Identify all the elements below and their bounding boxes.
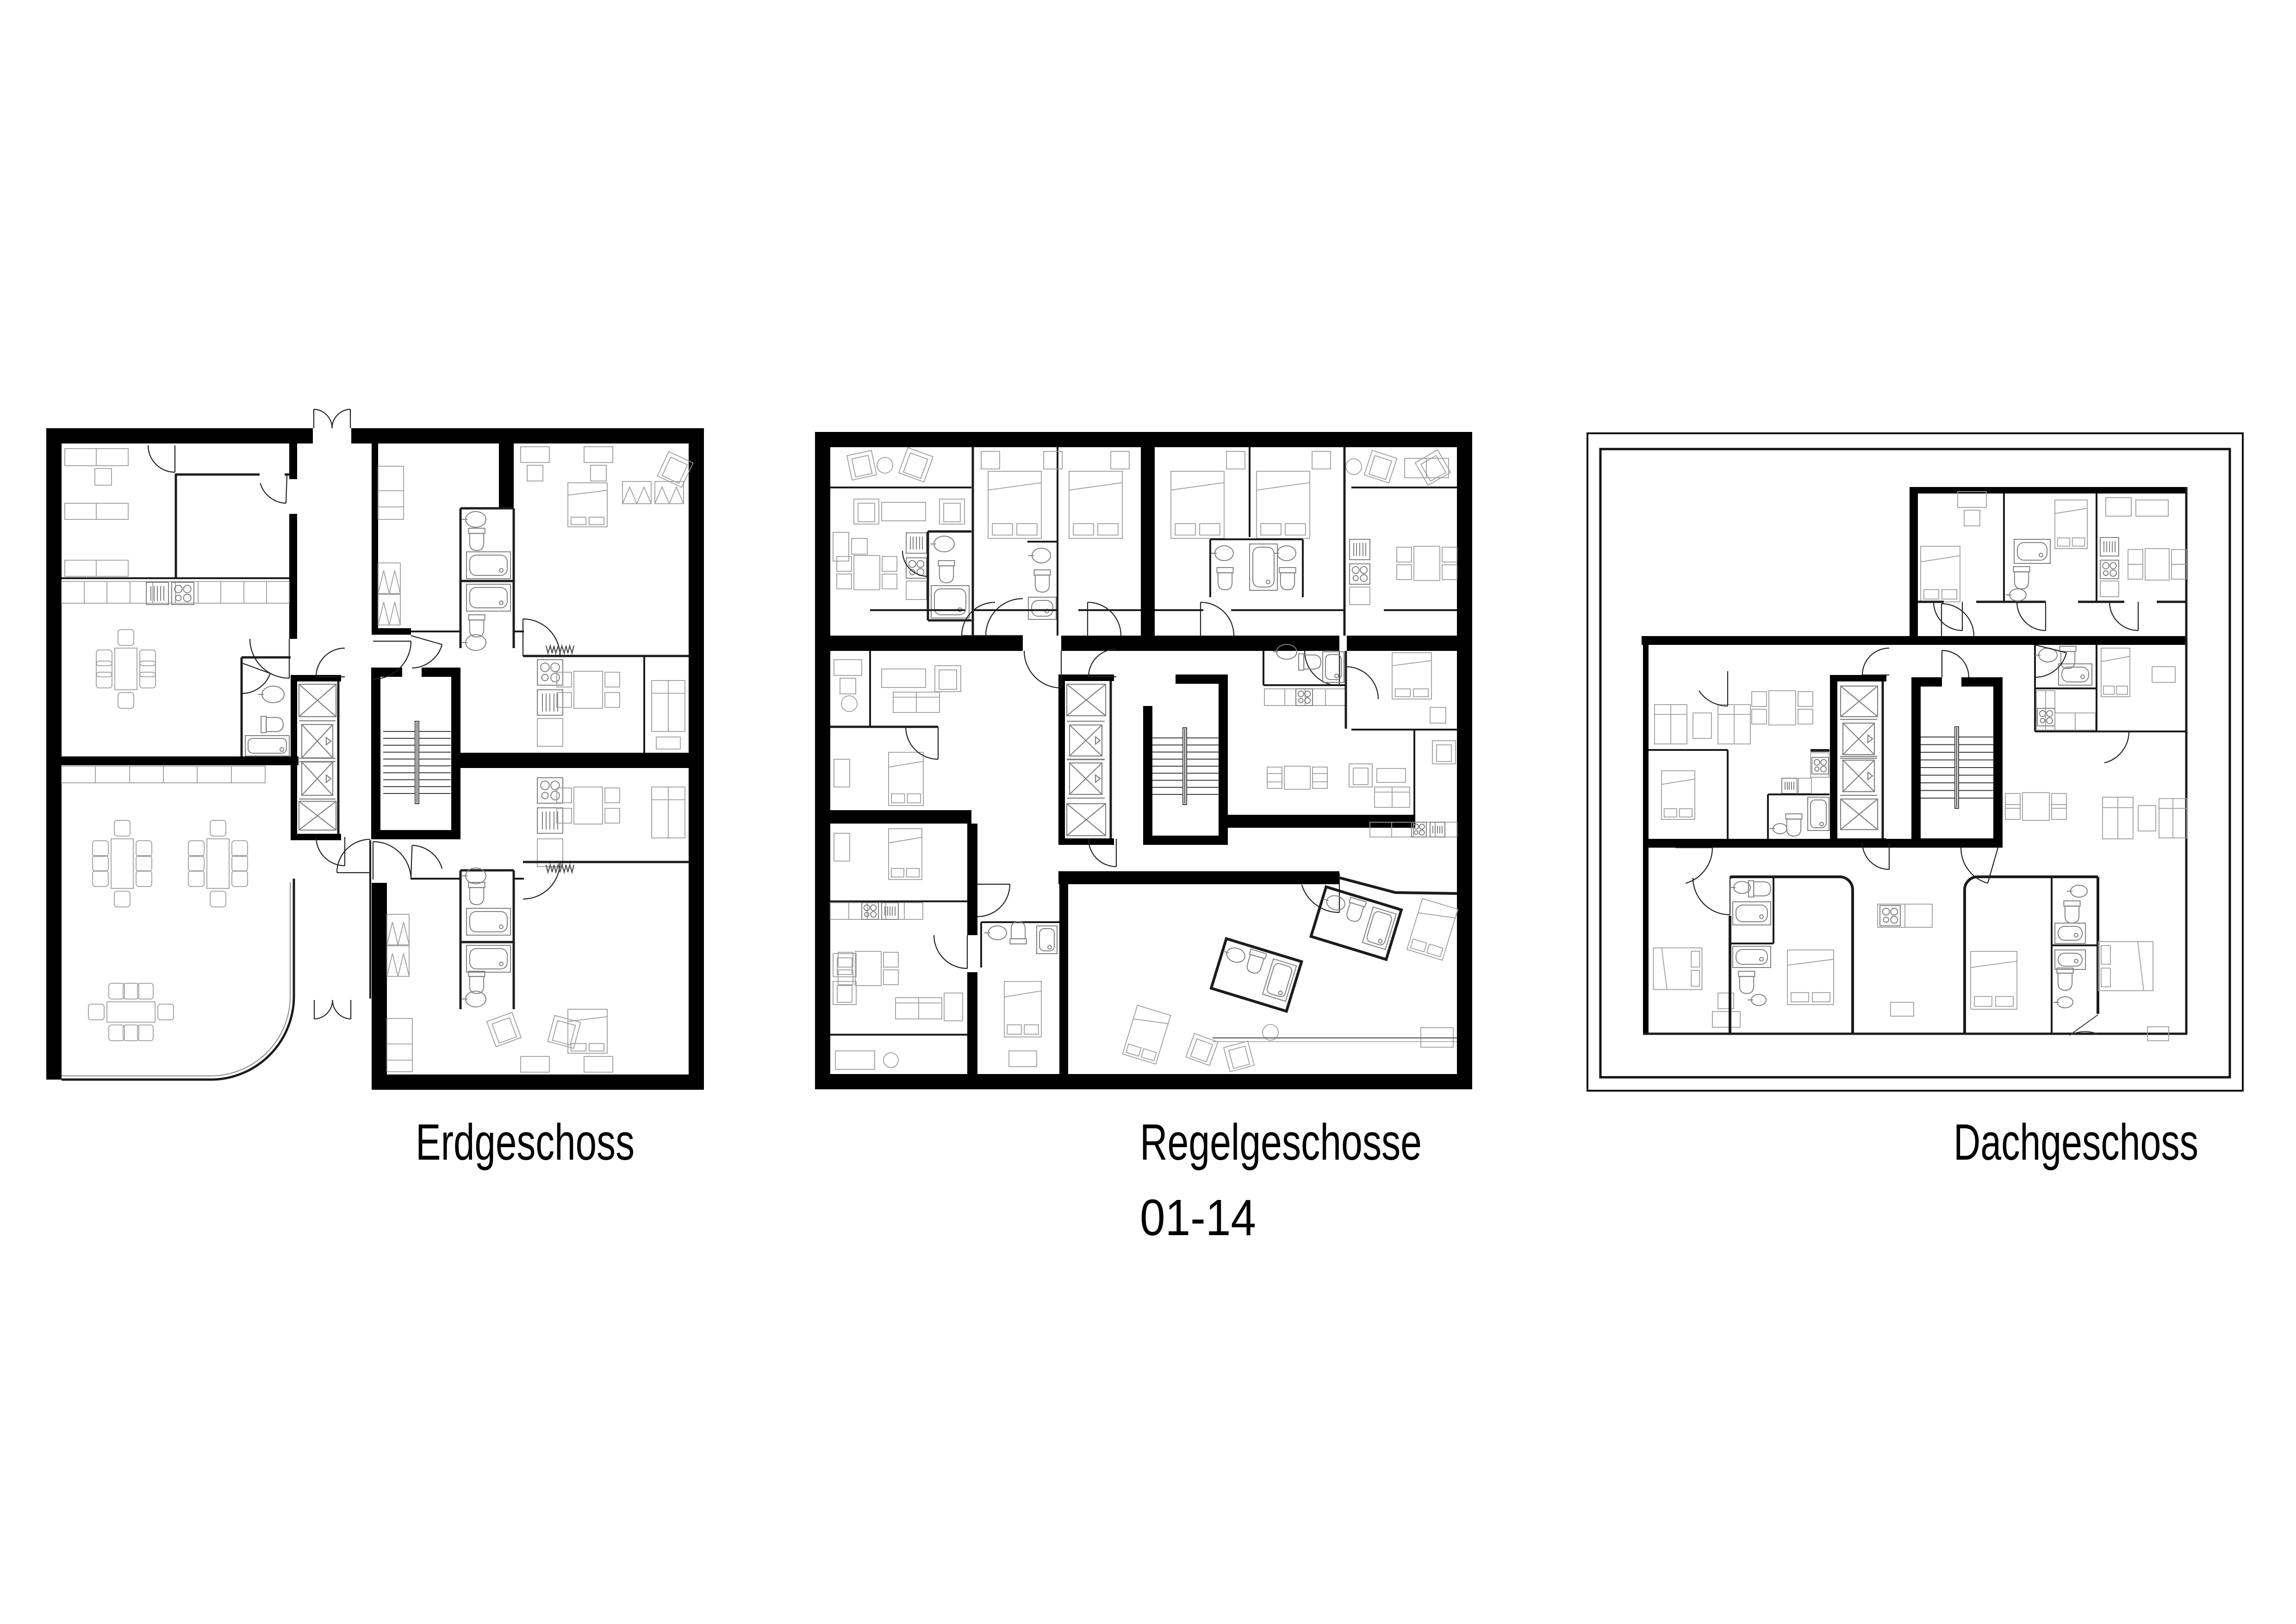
- svg-text:01-14: 01-14: [1140, 1189, 1256, 1246]
- svg-text:Dachgeschoss: Dachgeschoss: [1954, 1114, 2198, 1171]
- svg-text:Erdgeschoss: Erdgeschoss: [416, 1114, 635, 1171]
- svg-text:Regelgeschosse: Regelgeschosse: [1140, 1114, 1422, 1171]
